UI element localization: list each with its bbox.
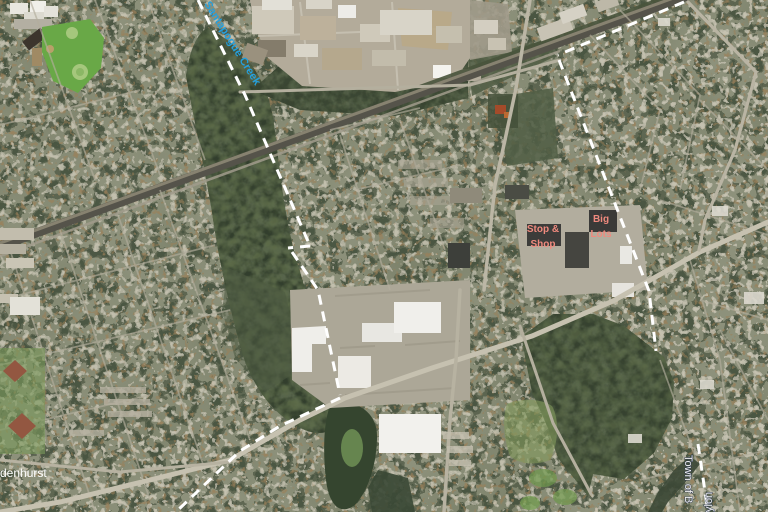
svg-text:denhurst: denhurst (0, 466, 47, 480)
svg-text:Shop: Shop (531, 239, 556, 250)
svg-text:Town of B: Town of B (682, 455, 694, 503)
svg-text:ylon: ylon (703, 492, 715, 512)
svg-text:Big: Big (593, 214, 609, 225)
svg-text:Stop &: Stop & (527, 224, 559, 235)
svg-text:Lots: Lots (590, 229, 612, 240)
